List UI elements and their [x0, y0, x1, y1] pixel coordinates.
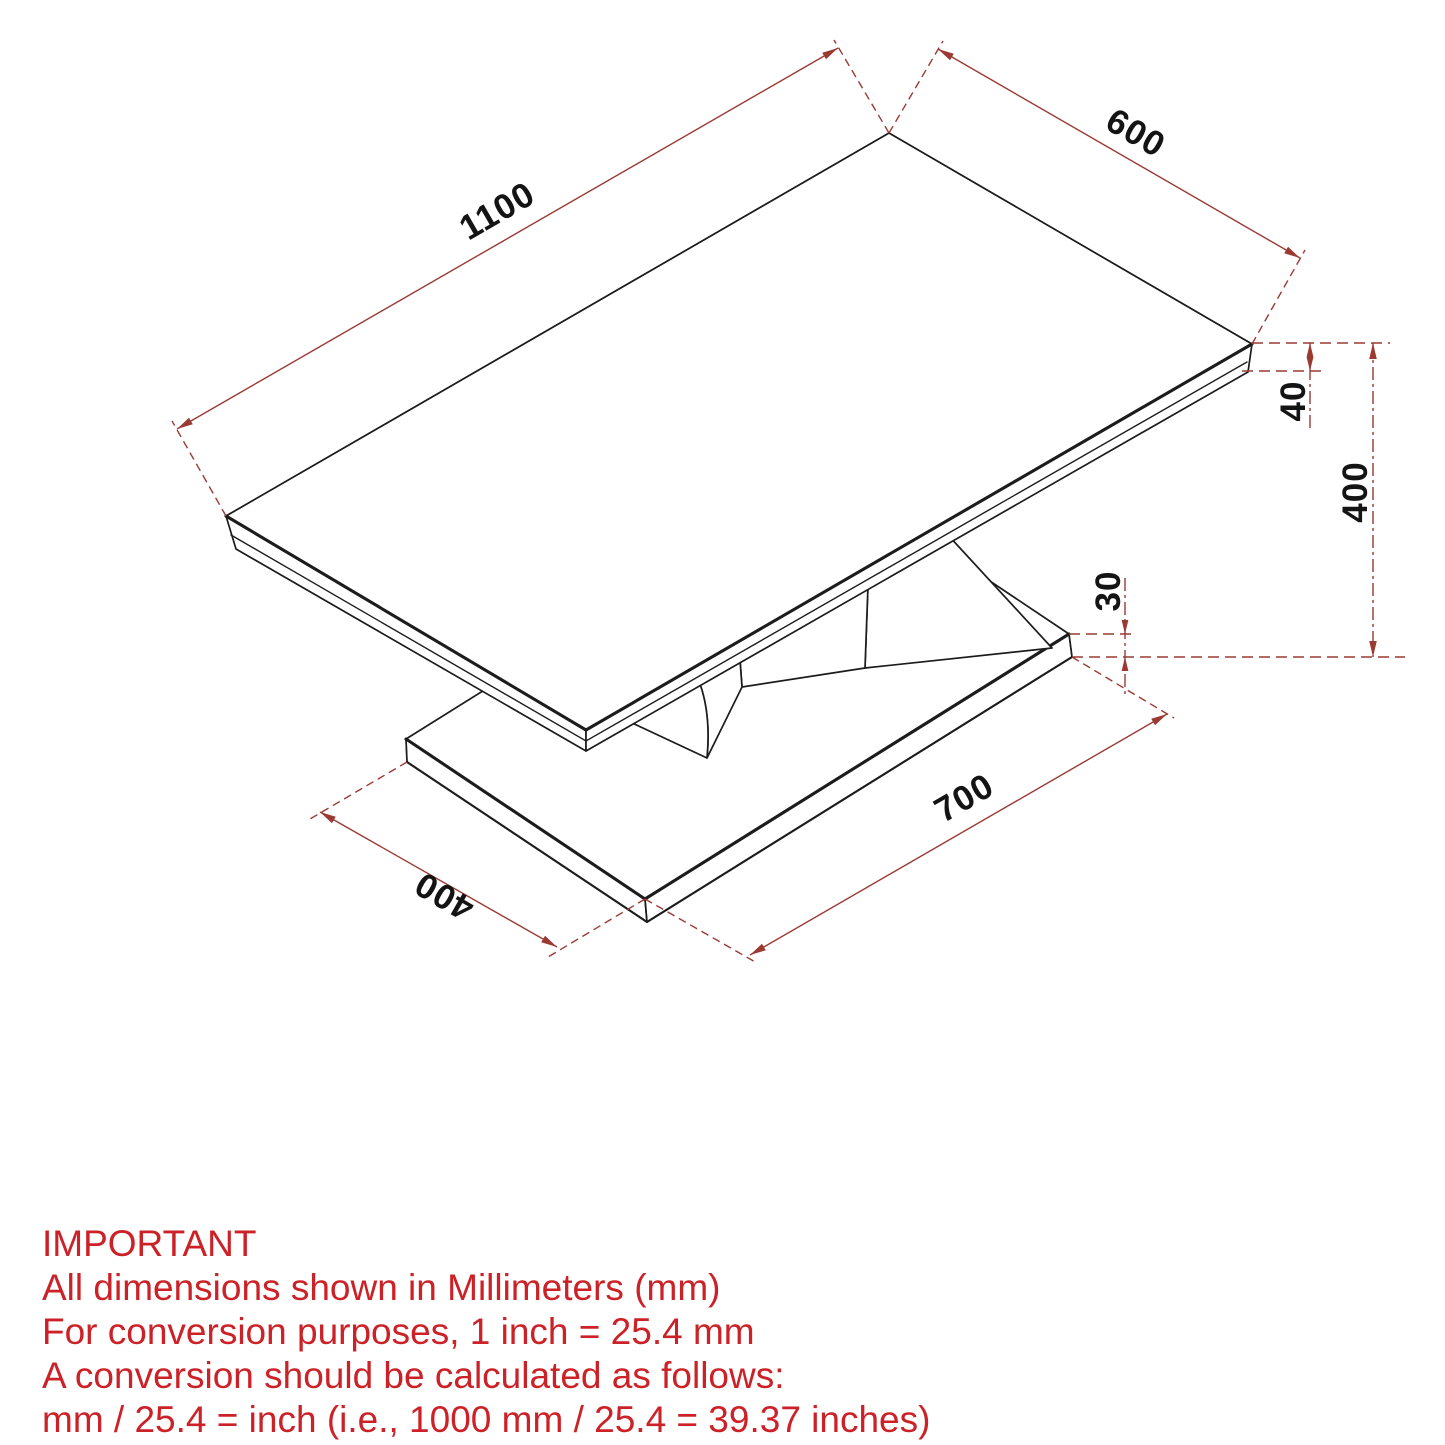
- units-note-block: IMPORTANT All dimensions shown in Millim…: [42, 1222, 930, 1442]
- technical-drawing-page: 1100 600 40 400: [0, 0, 1445, 1445]
- dim-label-1100: 1100: [453, 174, 542, 248]
- dim-label-40: 40: [1274, 381, 1313, 422]
- note-line: A conversion should be calculated as fol…: [42, 1354, 930, 1398]
- dimension-base-thickness: 30: [1089, 571, 1128, 695]
- note-title: IMPORTANT: [42, 1222, 930, 1266]
- dim-label-600: 600: [1099, 101, 1172, 165]
- dimension-overall-height: 400: [1336, 343, 1377, 657]
- dim-label-400-height: 400: [1336, 461, 1375, 522]
- note-line: mm / 25.4 = inch (i.e., 1000 mm / 25.4 =…: [42, 1398, 930, 1442]
- dimension-tabletop-thickness: 40: [1274, 343, 1313, 432]
- dim-label-30: 30: [1089, 571, 1128, 612]
- note-line: For conversion purposes, 1 inch = 25.4 m…: [42, 1310, 930, 1354]
- dim-label-700: 700: [928, 766, 1001, 830]
- note-line: All dimensions shown in Millimeters (mm): [42, 1266, 930, 1310]
- tabletop: [226, 133, 1252, 751]
- dim-label-400-base: 400: [408, 864, 481, 928]
